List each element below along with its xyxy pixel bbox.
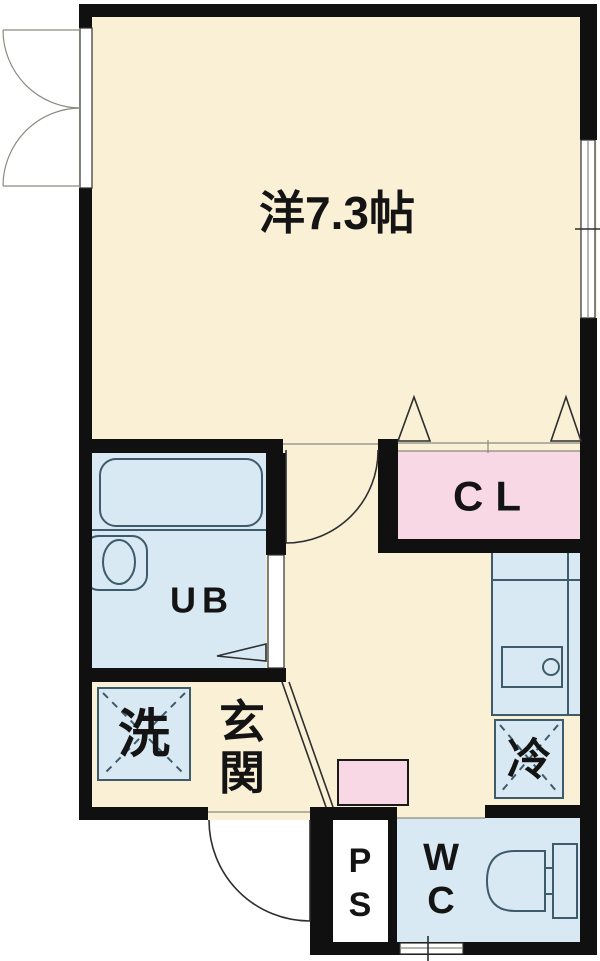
wall-ps-right <box>388 820 397 942</box>
wall-bath-bottom <box>79 668 286 682</box>
wall-left-lower <box>79 188 92 820</box>
wall-closet-bottom <box>378 539 597 553</box>
wall-mainroom-bottom-west <box>79 439 283 453</box>
pipe-space-label-char1: P <box>349 842 372 880</box>
wc-label-char2: C <box>427 880 454 922</box>
wall-top <box>79 4 597 17</box>
entrance-label-char2: 関 <box>219 747 265 799</box>
shoe-step <box>338 760 408 805</box>
floorplan-svg: 洋7.3帖 CL UB 洗 玄 関 冷 P S W C <box>0 0 600 961</box>
toilet-connector <box>545 868 553 894</box>
wc-label-char1: W <box>423 837 459 879</box>
wall-bath-right <box>266 453 286 555</box>
fridge-label: 冷 <box>507 736 551 785</box>
wall-wc-top <box>485 805 597 818</box>
floorplan-canvas: 洋7.3帖 CL UB 洗 玄 関 冷 P S W C <box>0 0 600 961</box>
entrance-label-char1: 玄 <box>219 696 265 748</box>
main-room-label: 洋7.3帖 <box>259 187 415 239</box>
toilet-tank <box>553 844 577 918</box>
bath-door-panel <box>268 555 284 668</box>
casement-arc-top <box>3 30 81 108</box>
closet-label: CL <box>453 473 533 520</box>
wall-closet-left <box>378 439 398 553</box>
unit-bath-floor <box>92 453 266 668</box>
entrance-door-arc <box>209 820 310 921</box>
casement-arc-bottom <box>3 108 81 186</box>
casement-window-left-frame <box>80 28 92 188</box>
wall-ps-top <box>333 807 397 820</box>
wall-right-upper <box>580 4 597 140</box>
toilet-bowl <box>487 851 545 911</box>
unit-bath-label: UB <box>170 580 234 621</box>
wall-bottom-left <box>79 807 208 820</box>
wall-ps-left <box>310 807 333 955</box>
wall-right-lower <box>580 318 597 955</box>
pipe-space-label-char2: S <box>349 886 372 924</box>
washer-label: 洗 <box>118 706 170 764</box>
wall-left-upper <box>79 4 92 28</box>
